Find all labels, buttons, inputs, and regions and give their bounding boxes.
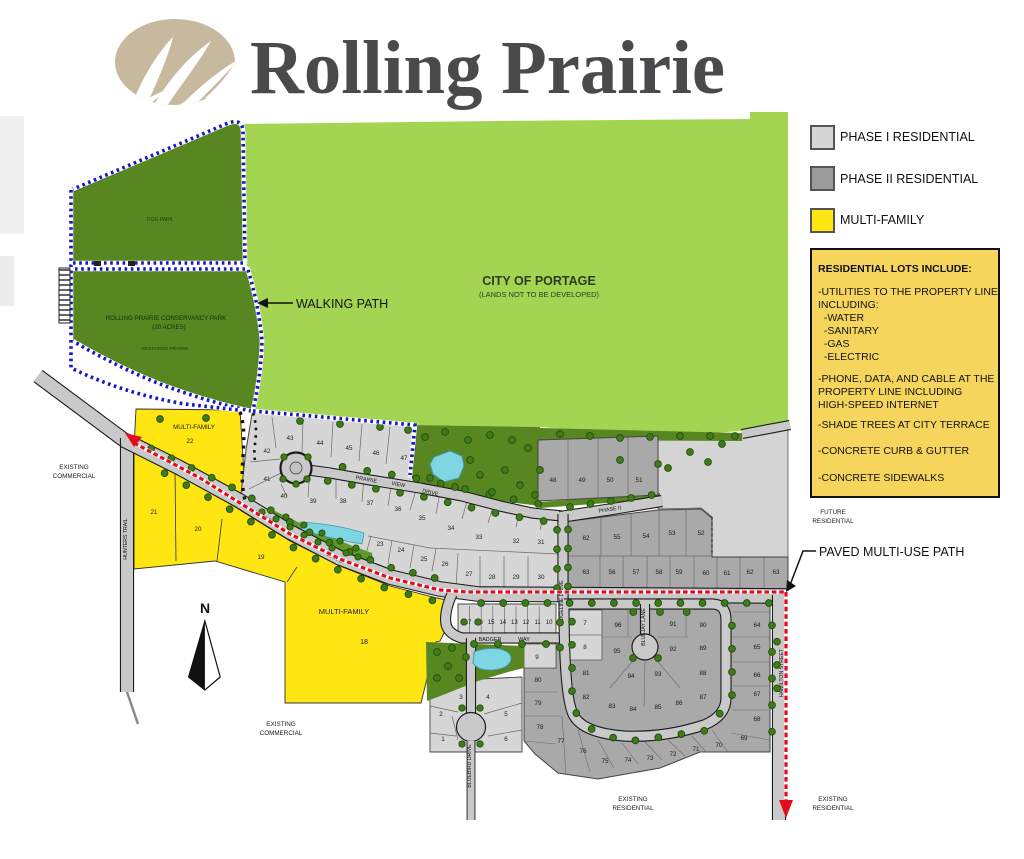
- svg-text:12: 12: [523, 620, 530, 626]
- svg-text:30: 30: [537, 574, 545, 581]
- svg-text:COMMERCIAL: COMMERCIAL: [260, 730, 303, 737]
- svg-text:79: 79: [534, 700, 542, 707]
- svg-text:70: 70: [715, 742, 723, 749]
- svg-text:EXISTING: EXISTING: [59, 464, 88, 471]
- svg-text:38: 38: [339, 498, 347, 505]
- svg-text:47: 47: [400, 455, 408, 462]
- svg-text:EXISTING: EXISTING: [818, 796, 847, 803]
- svg-text:71: 71: [692, 746, 700, 753]
- svg-text:82: 82: [582, 694, 590, 701]
- svg-text:MULTI-FAMILY: MULTI-FAMILY: [319, 607, 370, 616]
- svg-text:78: 78: [536, 724, 544, 731]
- svg-text:25: 25: [420, 556, 428, 563]
- svg-text:COMMERCIAL: COMMERCIAL: [53, 473, 96, 480]
- svg-text:MULTI-FAMILY: MULTI-FAMILY: [173, 424, 215, 431]
- svg-text:94: 94: [627, 673, 635, 680]
- svg-text:86: 86: [675, 700, 683, 707]
- svg-text:64: 64: [753, 622, 761, 629]
- svg-text:63: 63: [582, 569, 590, 576]
- svg-text:28: 28: [488, 574, 496, 581]
- svg-text:66: 66: [753, 672, 761, 679]
- svg-text:54: 54: [642, 533, 650, 540]
- svg-text:RESTORED PRAIRIE: RESTORED PRAIRIE: [141, 346, 188, 352]
- svg-text:84: 84: [629, 706, 637, 713]
- svg-text:20: 20: [195, 526, 202, 533]
- svg-text:51: 51: [635, 477, 643, 484]
- svg-text:50: 50: [606, 477, 614, 484]
- svg-text:58: 58: [655, 569, 663, 576]
- svg-text:BLUEBIRD DRIVE: BLUEBIRD DRIVE: [467, 744, 473, 788]
- svg-text:80: 80: [534, 677, 542, 684]
- svg-text:60: 60: [702, 570, 710, 577]
- svg-text:48: 48: [549, 477, 557, 484]
- svg-text:35: 35: [418, 515, 426, 522]
- svg-text:ROLLING PRAIRIE CONSERVANCY PA: ROLLING PRAIRIE CONSERVANCY PARK: [106, 315, 227, 322]
- svg-text:43: 43: [286, 435, 294, 442]
- svg-text:26: 26: [441, 561, 449, 568]
- svg-text:-CONCRETE CURB & GUTTER: -CONCRETE CURB & GUTTER: [818, 445, 970, 457]
- svg-text:45: 45: [345, 445, 353, 452]
- svg-text:-SHADE TREES AT CITY TERRACE: -SHADE TREES AT CITY TERRACE: [818, 419, 990, 431]
- svg-text:61: 61: [723, 570, 731, 577]
- svg-text:(20 ACRES): (20 ACRES): [152, 324, 186, 331]
- svg-text:(LANDS NOT TO BE DEVELOPED): (LANDS NOT TO BE DEVELOPED): [479, 290, 600, 299]
- svg-text:81: 81: [582, 670, 590, 677]
- svg-text:59: 59: [675, 569, 683, 576]
- svg-text:EXISTING: EXISTING: [618, 796, 647, 803]
- svg-text:29: 29: [512, 574, 520, 581]
- svg-text:DOG PARK: DOG PARK: [147, 217, 174, 223]
- svg-text:CITY OF PORTAGE: CITY OF PORTAGE: [482, 274, 595, 288]
- svg-text:PHASE II RESIDENTIAL: PHASE II RESIDENTIAL: [840, 172, 978, 186]
- svg-text:9: 9: [535, 654, 539, 661]
- svg-text:39: 39: [309, 498, 317, 505]
- svg-text:13: 13: [511, 620, 518, 626]
- svg-text:55: 55: [613, 534, 621, 541]
- svg-text:23: 23: [376, 541, 384, 548]
- svg-text:14: 14: [499, 620, 506, 626]
- svg-text:41: 41: [263, 476, 271, 483]
- svg-text:7: 7: [583, 620, 587, 627]
- svg-text:HIGH-SPEED INTERNET: HIGH-SPEED INTERNET: [818, 399, 939, 411]
- svg-text:34: 34: [447, 525, 455, 532]
- svg-text:4: 4: [486, 694, 490, 701]
- svg-text:72: 72: [669, 751, 677, 758]
- svg-text:85: 85: [654, 704, 662, 711]
- svg-text:65: 65: [753, 644, 761, 651]
- svg-text:-PHONE, DATA, AND CABLE AT THE: -PHONE, DATA, AND CABLE AT THE: [818, 373, 994, 385]
- svg-text:67: 67: [753, 691, 761, 698]
- svg-text:-GAS: -GAS: [818, 338, 850, 350]
- svg-text:89: 89: [699, 645, 707, 652]
- svg-text:76: 76: [579, 748, 587, 755]
- svg-text:MULTI-FAMILY: MULTI-FAMILY: [840, 213, 925, 227]
- svg-text:87: 87: [699, 694, 707, 701]
- svg-text:93: 93: [654, 671, 662, 678]
- svg-text:15: 15: [488, 620, 495, 626]
- svg-text:11: 11: [534, 620, 541, 626]
- svg-text:36: 36: [394, 506, 402, 513]
- svg-text:FUTURE: FUTURE: [820, 509, 846, 516]
- svg-text:1: 1: [441, 736, 445, 743]
- svg-text:53: 53: [668, 530, 676, 537]
- svg-text:27: 27: [465, 571, 473, 578]
- svg-text:RESIDENTIAL: RESIDENTIAL: [612, 805, 654, 812]
- svg-text:-ELECTRIC: -ELECTRIC: [818, 351, 880, 363]
- svg-text:PAVED MULTI-USE PATH: PAVED MULTI-USE PATH: [819, 545, 964, 559]
- svg-text:44: 44: [316, 440, 324, 447]
- svg-text:21: 21: [151, 509, 158, 516]
- svg-text:56: 56: [608, 569, 616, 576]
- svg-text:WALKING PATH: WALKING PATH: [296, 297, 388, 311]
- svg-text:24: 24: [397, 547, 405, 554]
- svg-text:6: 6: [504, 736, 508, 743]
- svg-text:-CONCRETE SIDEWALKS: -CONCRETE SIDEWALKS: [818, 472, 944, 484]
- svg-text:32: 32: [512, 538, 520, 545]
- svg-text:10: 10: [546, 620, 553, 626]
- svg-text:BLUEJAY LANE: BLUEJAY LANE: [641, 608, 647, 646]
- svg-text:8: 8: [583, 644, 587, 651]
- svg-text:-SANITARY: -SANITARY: [818, 325, 879, 337]
- svg-text:33: 33: [475, 534, 483, 541]
- svg-text:37: 37: [366, 500, 374, 507]
- svg-text:2: 2: [439, 711, 443, 718]
- svg-text:88: 88: [699, 670, 707, 677]
- svg-text:49: 49: [578, 477, 586, 484]
- svg-text:77: 77: [557, 738, 565, 745]
- svg-text:19: 19: [258, 554, 265, 561]
- svg-text:-UTILITIES TO THE PROPERTY LIN: -UTILITIES TO THE PROPERTY LINE: [818, 286, 998, 298]
- svg-text:92: 92: [669, 646, 677, 653]
- svg-text:74: 74: [624, 757, 632, 764]
- svg-text:42: 42: [263, 448, 271, 455]
- svg-text:5: 5: [504, 711, 508, 718]
- svg-text:40: 40: [280, 493, 288, 500]
- svg-text:95: 95: [613, 648, 621, 655]
- svg-text:73: 73: [646, 755, 654, 762]
- svg-text:PHASE I RESIDENTIAL: PHASE I RESIDENTIAL: [840, 130, 975, 144]
- svg-text:INCLUDING:: INCLUDING:: [818, 299, 879, 311]
- svg-text:N: N: [200, 600, 210, 616]
- svg-text:46: 46: [372, 450, 380, 457]
- svg-text:68: 68: [753, 716, 761, 723]
- svg-text:69: 69: [740, 735, 748, 742]
- svg-text:63: 63: [772, 569, 780, 576]
- svg-text:22: 22: [187, 438, 194, 445]
- svg-text:18: 18: [360, 639, 368, 646]
- svg-text:HUNTERS TRAIL: HUNTERS TRAIL: [123, 518, 129, 559]
- svg-text:31: 31: [537, 539, 545, 546]
- svg-text:90: 90: [699, 622, 707, 629]
- svg-text:91: 91: [669, 621, 677, 628]
- svg-text:PROPERTY LINE INCLUDING: PROPERTY LINE INCLUDING: [818, 386, 962, 398]
- svg-text:-WATER: -WATER: [818, 312, 864, 324]
- svg-text:RESIDENTIAL: RESIDENTIAL: [812, 805, 854, 812]
- svg-text:57: 57: [632, 569, 640, 576]
- svg-text:Rolling Prairie: Rolling Prairie: [250, 26, 725, 110]
- svg-text:RESIDENTIAL: RESIDENTIAL: [812, 518, 854, 525]
- svg-text:62: 62: [746, 569, 754, 576]
- svg-text:EXISTING: EXISTING: [266, 721, 295, 728]
- svg-text:96: 96: [614, 622, 622, 629]
- svg-text:62: 62: [582, 535, 590, 542]
- svg-text:3: 3: [459, 694, 463, 701]
- svg-text:RESIDENTIAL LOTS INCLUDE:: RESIDENTIAL LOTS INCLUDE:: [818, 263, 972, 275]
- svg-text:75: 75: [601, 758, 609, 765]
- svg-text:83: 83: [608, 703, 616, 710]
- svg-text:52: 52: [697, 530, 705, 537]
